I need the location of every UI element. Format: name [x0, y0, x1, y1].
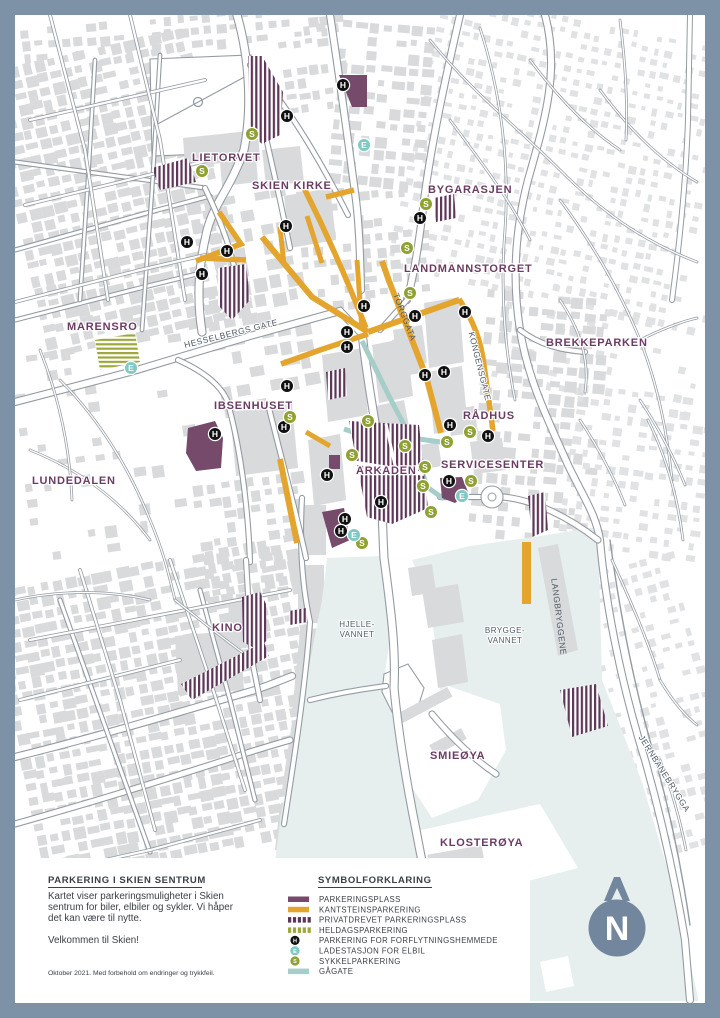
svg-text:H: H — [446, 476, 452, 486]
svg-text:S: S — [420, 481, 426, 491]
svg-text:RÅDHUS: RÅDHUS — [463, 409, 515, 422]
svg-text:PARKERING I SKIEN SENTRUM: PARKERING I SKIEN SENTRUM — [48, 875, 206, 886]
svg-text:H: H — [324, 470, 330, 480]
svg-text:E: E — [293, 949, 297, 955]
svg-text:H: H — [344, 342, 350, 352]
svg-text:H: H — [485, 431, 491, 441]
svg-text:S: S — [293, 959, 297, 965]
svg-text:KINO: KINO — [212, 622, 243, 634]
svg-text:SERVICESENTER: SERVICESENTER — [441, 459, 544, 471]
svg-text:N: N — [605, 910, 630, 948]
svg-text:E: E — [351, 530, 357, 540]
svg-text:H: H — [284, 111, 290, 121]
svg-text:S: S — [428, 507, 434, 517]
svg-text:BREKKEPARKEN: BREKKEPARKEN — [546, 337, 648, 349]
svg-text:S: S — [249, 129, 255, 139]
svg-text:H: H — [284, 381, 290, 391]
svg-text:KANTSTEINSPARKERING: KANTSTEINSPARKERING — [319, 905, 421, 914]
svg-text:H: H — [338, 526, 344, 536]
svg-text:S: S — [402, 441, 408, 451]
svg-text:det kan være til nytte.: det kan være til nytte. — [48, 913, 142, 924]
svg-text:S: S — [467, 427, 473, 437]
svg-text:H: H — [361, 301, 367, 311]
svg-text:KLOSTERØYA: KLOSTERØYA — [440, 837, 523, 849]
svg-text:H: H — [447, 420, 453, 430]
svg-text:H: H — [342, 514, 348, 524]
svg-text:H: H — [417, 213, 423, 223]
svg-text:H: H — [199, 269, 205, 279]
svg-text:H: H — [378, 497, 384, 507]
svg-text:MARENSRO: MARENSRO — [67, 321, 138, 333]
svg-text:H: H — [184, 237, 190, 247]
svg-text:S: S — [404, 243, 410, 253]
svg-text:S: S — [359, 538, 365, 548]
svg-text:H: H — [283, 221, 289, 231]
svg-text:E: E — [361, 140, 367, 150]
svg-text:S: S — [468, 476, 474, 486]
svg-text:H: H — [224, 246, 230, 256]
svg-text:S: S — [422, 462, 428, 472]
svg-text:H: H — [344, 327, 350, 337]
svg-text:LADESTASJON FOR ELBIL: LADESTASJON FOR ELBIL — [319, 947, 425, 956]
svg-text:BYGARASJEN: BYGARASJEN — [428, 184, 512, 196]
svg-text:HELDAGSPARKERING: HELDAGSPARKERING — [319, 926, 408, 935]
svg-text:H: H — [422, 370, 428, 380]
svg-text:SKIEN KIRKE: SKIEN KIRKE — [252, 180, 332, 192]
svg-text:E: E — [128, 363, 134, 373]
svg-text:S: S — [407, 288, 413, 298]
svg-text:GÅGATE: GÅGATE — [319, 967, 353, 976]
svg-text:LIETORVET: LIETORVET — [192, 152, 261, 164]
svg-text:BRYGGE-: BRYGGE- — [485, 626, 525, 635]
svg-text:PARKERING FOR FORFLYTNINGSHEMM: PARKERING FOR FORFLYTNINGSHEMMEDE — [319, 936, 498, 945]
svg-text:ARKADEN: ARKADEN — [356, 465, 417, 477]
svg-text:SMIEØYA: SMIEØYA — [430, 750, 485, 762]
svg-text:S: S — [287, 412, 293, 422]
svg-text:S: S — [365, 416, 371, 426]
svg-text:H: H — [293, 939, 297, 945]
svg-text:H: H — [462, 307, 468, 317]
svg-text:PRIVATDREVET PARKERINGSPLASS: PRIVATDREVET PARKERINGSPLASS — [319, 916, 467, 925]
svg-text:SYKKELPARKERING: SYKKELPARKERING — [319, 957, 401, 966]
svg-text:Oktober 2021. Med forbehold om: Oktober 2021. Med forbehold om endringer… — [48, 970, 215, 977]
svg-text:IBSENHUSET: IBSENHUSET — [214, 400, 293, 412]
svg-text:H: H — [212, 429, 218, 439]
svg-text:LANDMANNSTORGET: LANDMANNSTORGET — [404, 263, 533, 275]
svg-text:S: S — [349, 450, 355, 460]
svg-text:HJELLE-: HJELLE- — [339, 620, 375, 629]
svg-text:VANNET: VANNET — [340, 630, 375, 639]
svg-text:H: H — [441, 367, 447, 377]
svg-text:H: H — [281, 422, 287, 432]
svg-text:Kartet viser parkeringsmulighe: Kartet viser parkeringsmuligheter i Skie… — [48, 891, 224, 902]
svg-text:PARKERINGSPLASS: PARKERINGSPLASS — [319, 895, 401, 904]
svg-text:E: E — [459, 491, 465, 501]
svg-text:Velkommen til Skien!: Velkommen til Skien! — [48, 935, 139, 946]
svg-text:sentrum for biler, elbiler og: sentrum for biler, elbiler og sykler. Vi… — [48, 902, 234, 913]
svg-text:SYMBOLFORKLARING: SYMBOLFORKLARING — [318, 875, 432, 886]
svg-text:H: H — [340, 80, 346, 90]
svg-text:VANNET: VANNET — [488, 636, 523, 645]
svg-text:H: H — [412, 311, 418, 321]
svg-text:S: S — [444, 437, 450, 447]
svg-text:S: S — [199, 166, 205, 176]
svg-text:LUNDEDALEN: LUNDEDALEN — [32, 475, 116, 487]
svg-text:S: S — [423, 199, 429, 209]
